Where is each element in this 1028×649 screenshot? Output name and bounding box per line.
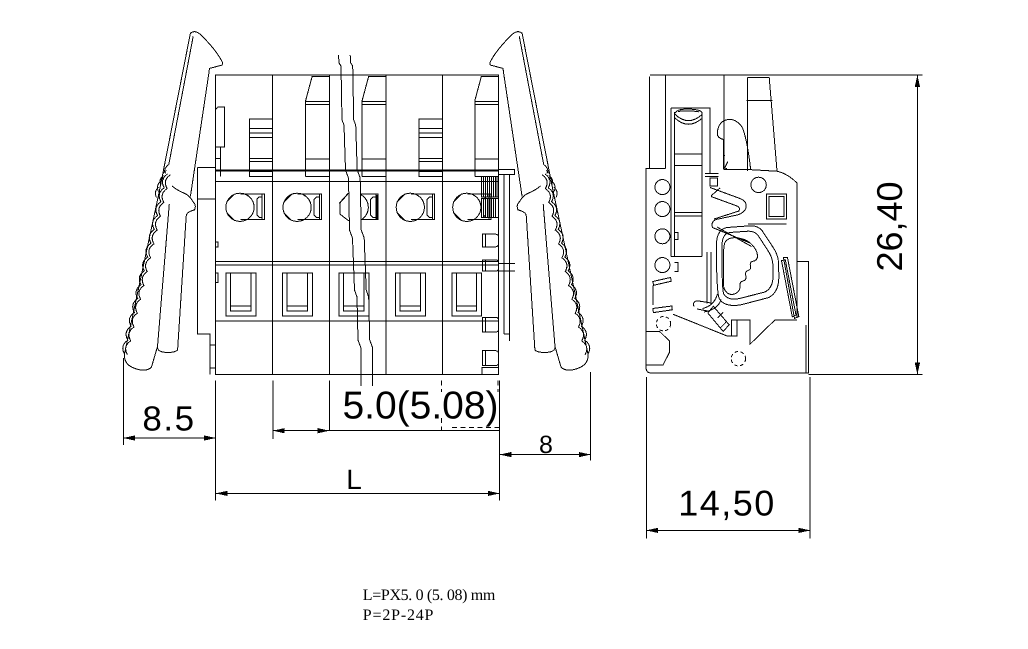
svg-text:L=PX5. 0 (5. 08) mm: L=PX5. 0 (5. 08) mm (363, 587, 496, 604)
svg-text:P=2P-24P: P=2P-24P (363, 607, 434, 624)
svg-text:5.0(5.08): 5.0(5.08) (342, 385, 498, 428)
svg-text:14,50: 14,50 (678, 483, 776, 524)
svg-text:L: L (346, 464, 362, 495)
svg-text:8: 8 (539, 431, 553, 459)
svg-text:26,40: 26,40 (869, 181, 910, 271)
svg-text:8.5: 8.5 (142, 400, 195, 439)
